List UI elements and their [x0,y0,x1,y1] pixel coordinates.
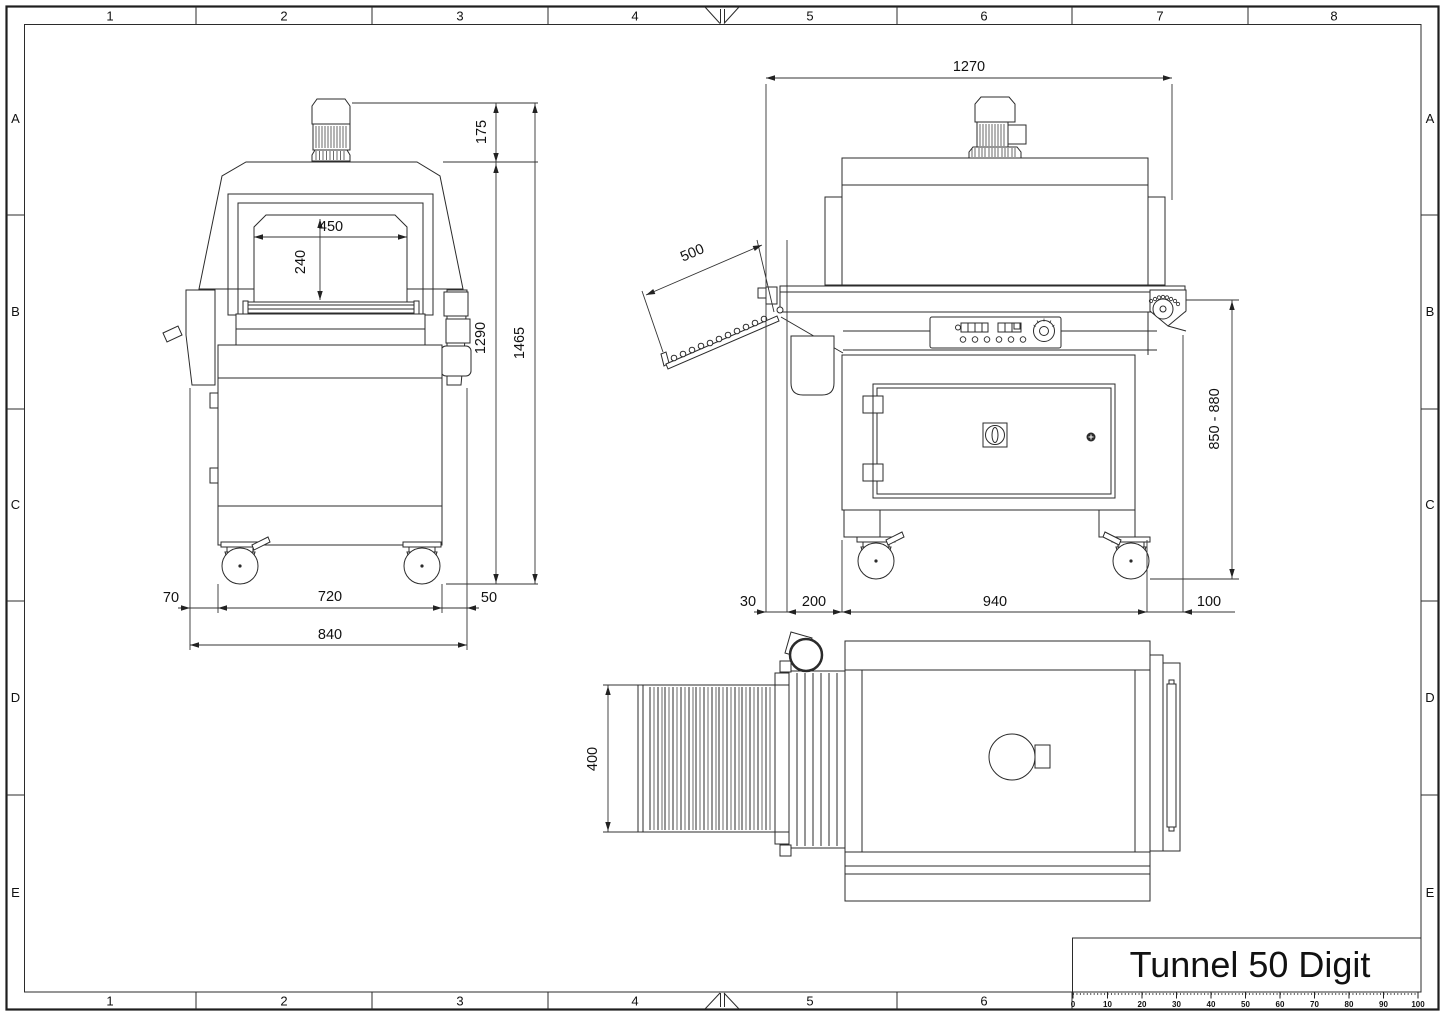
grid-col-label: 4 [631,9,638,24]
dim-right-offset: 50 [481,590,497,606]
end-curtain [1163,663,1180,851]
grid-col-label: 7 [1156,9,1163,24]
grid-col-label: 1 [106,9,113,24]
dim-conveyor-width: 400 [585,747,601,771]
scrap-bin [791,336,834,395]
sprocket [1153,299,1173,319]
cabinet-front [218,345,442,545]
dim-overall-length: 1270 [953,59,985,75]
dim-total-height: 1465 [512,327,528,359]
side-view [661,97,1186,579]
outfeed-tray [666,316,779,369]
motor-fins [977,122,1008,147]
cad-canvas: 1 2 3 4 5 6 7 8 1 2 3 4 5 6 A B C D E A … [0,0,1445,1016]
scale-ruler: 0 10 20 30 40 50 60 70 80 90 100 [1071,993,1425,1010]
ruler-label: 10 [1103,1000,1112,1009]
drawing-title: Tunnel 50 Digit [1130,944,1371,985]
motor-junction-box [1008,125,1026,144]
grid-row-label: A [1426,111,1435,126]
grid-col-label: 5 [806,994,813,1009]
right-latch-box [444,292,468,316]
dim-tray-overhang: 200 [802,594,826,610]
hinge [873,464,883,481]
dim-rear-offset: 30 [740,594,756,610]
grid-col-label: 6 [980,994,987,1009]
grid-row-label: B [11,304,20,319]
ruler-label: 100 [1411,1000,1425,1009]
motor-fins [313,124,350,150]
dim-tray-length: 500 [678,241,707,265]
grid-col-label: 6 [980,9,987,24]
grid-row-label: E [1426,885,1435,900]
dim-opening-height: 240 [293,250,309,274]
grid-col-label: 2 [280,994,287,1009]
hinge [210,468,218,483]
grid-col-label: 3 [456,994,463,1009]
right-cover [441,346,471,376]
ruler-label: 30 [1172,1000,1181,1009]
conveyor-table [780,286,1185,312]
left-end-tab [825,197,842,285]
motor-cap [975,97,1015,122]
hinge [210,393,218,408]
grid-row-label: D [11,690,20,705]
grid-col-label: 2 [280,9,287,24]
conveyor-bar [248,302,414,313]
roller-conveyor [638,685,775,832]
grid-col-label: 1 [106,994,113,1009]
dim-overall-width: 840 [318,627,342,643]
caster-wheel [403,542,441,584]
grid-col-label: 4 [631,994,638,1009]
dim-base-length: 940 [983,594,1007,610]
center-fold-marks [705,7,739,1009]
title-block: Tunnel 50 Digit [1073,938,1422,992]
hinge [863,464,873,481]
dim-opening-width: 450 [319,219,343,235]
right-box [446,319,470,343]
grid-col-label: 8 [1330,9,1337,24]
control-panel [930,317,1061,348]
ruler-label: 50 [1241,1000,1250,1009]
top-view [638,632,1180,901]
grid-row-label: D [1425,690,1434,705]
ruler-label: 70 [1310,1000,1319,1009]
motor-top [989,734,1035,780]
dim-working-height: 850 - 880 [1207,388,1223,449]
ruler-label: 60 [1276,1000,1285,1009]
dim-base-width: 720 [318,589,342,605]
photocell [790,639,822,671]
grid-row-label: C [11,497,20,512]
ruler-label: 0 [1071,1000,1076,1009]
ruler-label: 80 [1345,1000,1354,1009]
leg [844,510,880,537]
drawing-sheet: 1 2 3 4 5 6 7 8 1 2 3 4 5 6 A B C D E A … [0,0,1445,1016]
hinge [863,396,873,413]
brake-lever [886,532,904,545]
grid-row-label: B [1426,304,1435,319]
dim-front-overhang: 100 [1197,594,1221,610]
grid-col-label: 5 [806,9,813,24]
tunnel-body [842,158,1148,285]
top-grid-dividers [196,7,1248,25]
grid-row-label: A [11,111,20,126]
left-handle [163,326,182,342]
grid-row-label: E [11,885,20,900]
dim-motor-height: 175 [474,120,490,144]
grid-row-label: C [1425,497,1434,512]
ruler-label: 20 [1138,1000,1147,1009]
ruler-label: 90 [1379,1000,1388,1009]
front-view [163,99,471,584]
tray-rollers [671,316,767,361]
grid-col-label: 3 [456,9,463,24]
ruler-label: 40 [1207,1000,1216,1009]
hinge [873,396,883,413]
dim-tunnel-height: 1290 [473,322,489,354]
dim-left-offset: 70 [163,590,179,606]
motor-cap [312,99,350,124]
left-side-panel [186,290,215,385]
right-end-tab [1148,197,1165,285]
